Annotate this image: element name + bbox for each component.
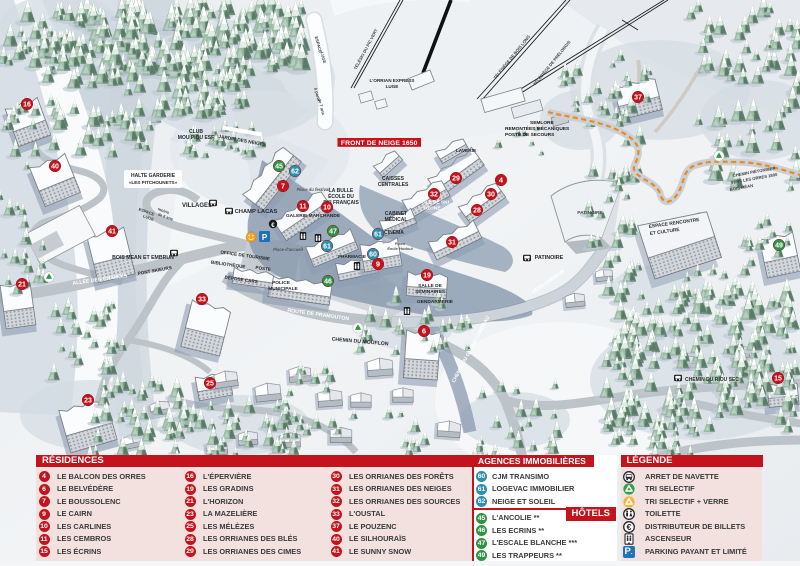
svg-text:29: 29	[452, 175, 460, 182]
svg-text:MÉDICAL: MÉDICAL	[385, 215, 408, 223]
svg-text:19: 19	[423, 272, 431, 279]
svg-text:HALTE GARDERIE: HALTE GARDERIE	[131, 173, 176, 179]
svg-text:62: 62	[291, 168, 299, 175]
svg-text:41: 41	[108, 228, 116, 235]
svg-text:GENDARMERIE: GENDARMERIE	[417, 299, 454, 305]
svg-text:7: 7	[281, 181, 285, 190]
svg-text:MUNICIPALE: MUNICIPALE	[268, 286, 298, 292]
svg-text:PATINOIRE: PATINOIRE	[535, 255, 564, 261]
svg-text:SEMLORE: SEMLORE	[530, 120, 555, 126]
svg-text:11: 11	[299, 203, 307, 210]
svg-text:33: 33	[198, 296, 206, 303]
svg-text:CHAMP LACAS: CHAMP LACAS	[235, 209, 278, 215]
svg-text:POLICE: POLICE	[272, 280, 291, 286]
svg-text:23: 23	[84, 397, 92, 404]
svg-text:15: 15	[774, 375, 782, 382]
svg-text:21: 21	[18, 281, 26, 288]
svg-text:30: 30	[487, 191, 495, 198]
svg-text:OZONE: OZONE	[423, 206, 441, 212]
svg-text:31: 31	[448, 239, 456, 246]
svg-text:GALERIE MARCHANDE: GALERIE MARCHANDE	[286, 213, 341, 219]
svg-text:MOU PIOU ESF: MOU PIOU ESF	[178, 135, 214, 141]
svg-text:61: 61	[374, 231, 382, 238]
svg-text:VILLAGES: VILLAGES	[182, 203, 212, 209]
svg-text:Émile Hodoul: Émile Hodoul	[387, 246, 413, 251]
svg-text:L'ORRIAN EXPRESS: L'ORRIAN EXPRESS	[370, 78, 415, 83]
svg-text:BOIS MEAN ET EMBRUN: BOIS MEAN ET EMBRUN	[112, 255, 174, 261]
svg-text:28: 28	[473, 207, 481, 214]
svg-text:40: 40	[51, 163, 59, 170]
svg-text:10: 10	[323, 204, 331, 211]
svg-text:LUGE: LUGE	[386, 84, 399, 89]
svg-text:47: 47	[329, 228, 337, 235]
svg-text:45: 45	[275, 163, 283, 170]
svg-text:9: 9	[376, 259, 380, 268]
svg-text:P: P	[262, 233, 268, 242]
svg-text:€: €	[626, 522, 631, 532]
svg-text:CHEMIN DU RIOU SEC: CHEMIN DU RIOU SEC	[685, 377, 739, 383]
svg-text:CINÉMA: CINÉMA	[384, 228, 404, 236]
svg-text:LAVERIE: LAVERIE	[456, 148, 477, 154]
svg-text:ÉCOLE DU: ÉCOLE DU	[328, 192, 354, 200]
svg-text:Place d'accueil: Place d'accueil	[273, 247, 304, 252]
svg-text:25: 25	[206, 380, 214, 387]
svg-text:FRONT DE NEIGE 1650: FRONT DE NEIGE 1650	[341, 140, 418, 147]
svg-text:«LES PITCHOUNETS»: «LES PITCHOUNETS»	[129, 180, 178, 185]
svg-text:PHARMACIE: PHARMACIE	[338, 254, 366, 259]
svg-text:Place du festival: Place du festival	[297, 187, 331, 192]
svg-text:46: 46	[324, 278, 332, 285]
svg-text:CENTRALES: CENTRALES	[378, 182, 409, 188]
svg-text:POSTE DE SECOURS: POSTE DE SECOURS	[505, 132, 555, 138]
svg-text:€: €	[271, 222, 275, 229]
svg-text:61: 61	[323, 243, 331, 250]
svg-text:16: 16	[23, 101, 31, 108]
svg-text:49: 49	[775, 242, 783, 249]
svg-text:6: 6	[422, 326, 426, 335]
svg-text:SALLE DE: SALLE DE	[418, 283, 443, 289]
svg-text:PATINOIRE: PATINOIRE	[577, 210, 603, 216]
svg-text:37: 37	[634, 94, 642, 101]
svg-text:60: 60	[369, 251, 377, 258]
svg-text:32: 32	[430, 191, 438, 198]
